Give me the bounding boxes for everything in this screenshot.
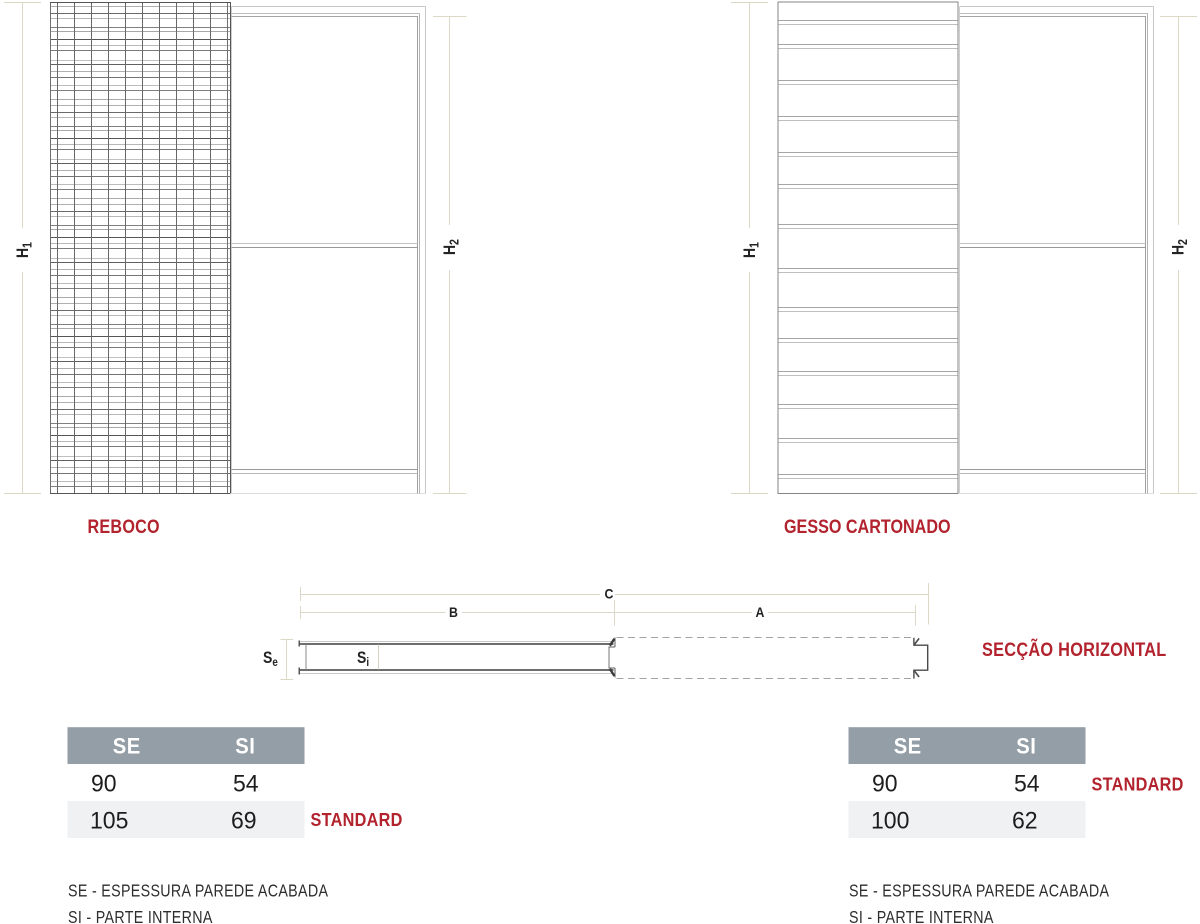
svg-text:62: 62 — [1012, 807, 1038, 834]
svg-text:B: B — [449, 604, 458, 620]
svg-text:SE - ESPESSURA PAREDE ACABADA: SE - ESPESSURA PAREDE ACABADA — [68, 882, 328, 901]
svg-text:100: 100 — [871, 807, 909, 834]
svg-text:54: 54 — [233, 770, 259, 797]
svg-text:STANDARD: STANDARD — [1092, 774, 1184, 795]
svg-text:SECÇÃO HORIZONTAL: SECÇÃO HORIZONTAL — [982, 638, 1167, 661]
svg-text:REBOCO: REBOCO — [88, 516, 160, 538]
svg-text:SE: SE — [894, 734, 922, 759]
svg-text:C: C — [605, 586, 614, 602]
svg-text:SE - ESPESSURA PAREDE ACABADA: SE - ESPESSURA PAREDE ACABADA — [849, 882, 1109, 901]
svg-text:SI - PARTE INTERNA: SI - PARTE INTERNA — [68, 909, 213, 924]
svg-text:54: 54 — [1014, 770, 1040, 797]
svg-text:90: 90 — [872, 770, 898, 797]
svg-text:SE: SE — [113, 734, 141, 759]
svg-text:90: 90 — [91, 770, 117, 797]
svg-text:GESSO CARTONADO: GESSO CARTONADO — [784, 516, 951, 538]
svg-text:69: 69 — [231, 807, 257, 834]
svg-text:105: 105 — [90, 807, 128, 834]
svg-text:SI: SI — [235, 734, 255, 759]
svg-text:SI: SI — [1016, 734, 1036, 759]
svg-text:A: A — [756, 604, 765, 620]
svg-text:SI - PARTE INTERNA: SI - PARTE INTERNA — [849, 909, 994, 924]
svg-text:STANDARD: STANDARD — [311, 809, 403, 830]
